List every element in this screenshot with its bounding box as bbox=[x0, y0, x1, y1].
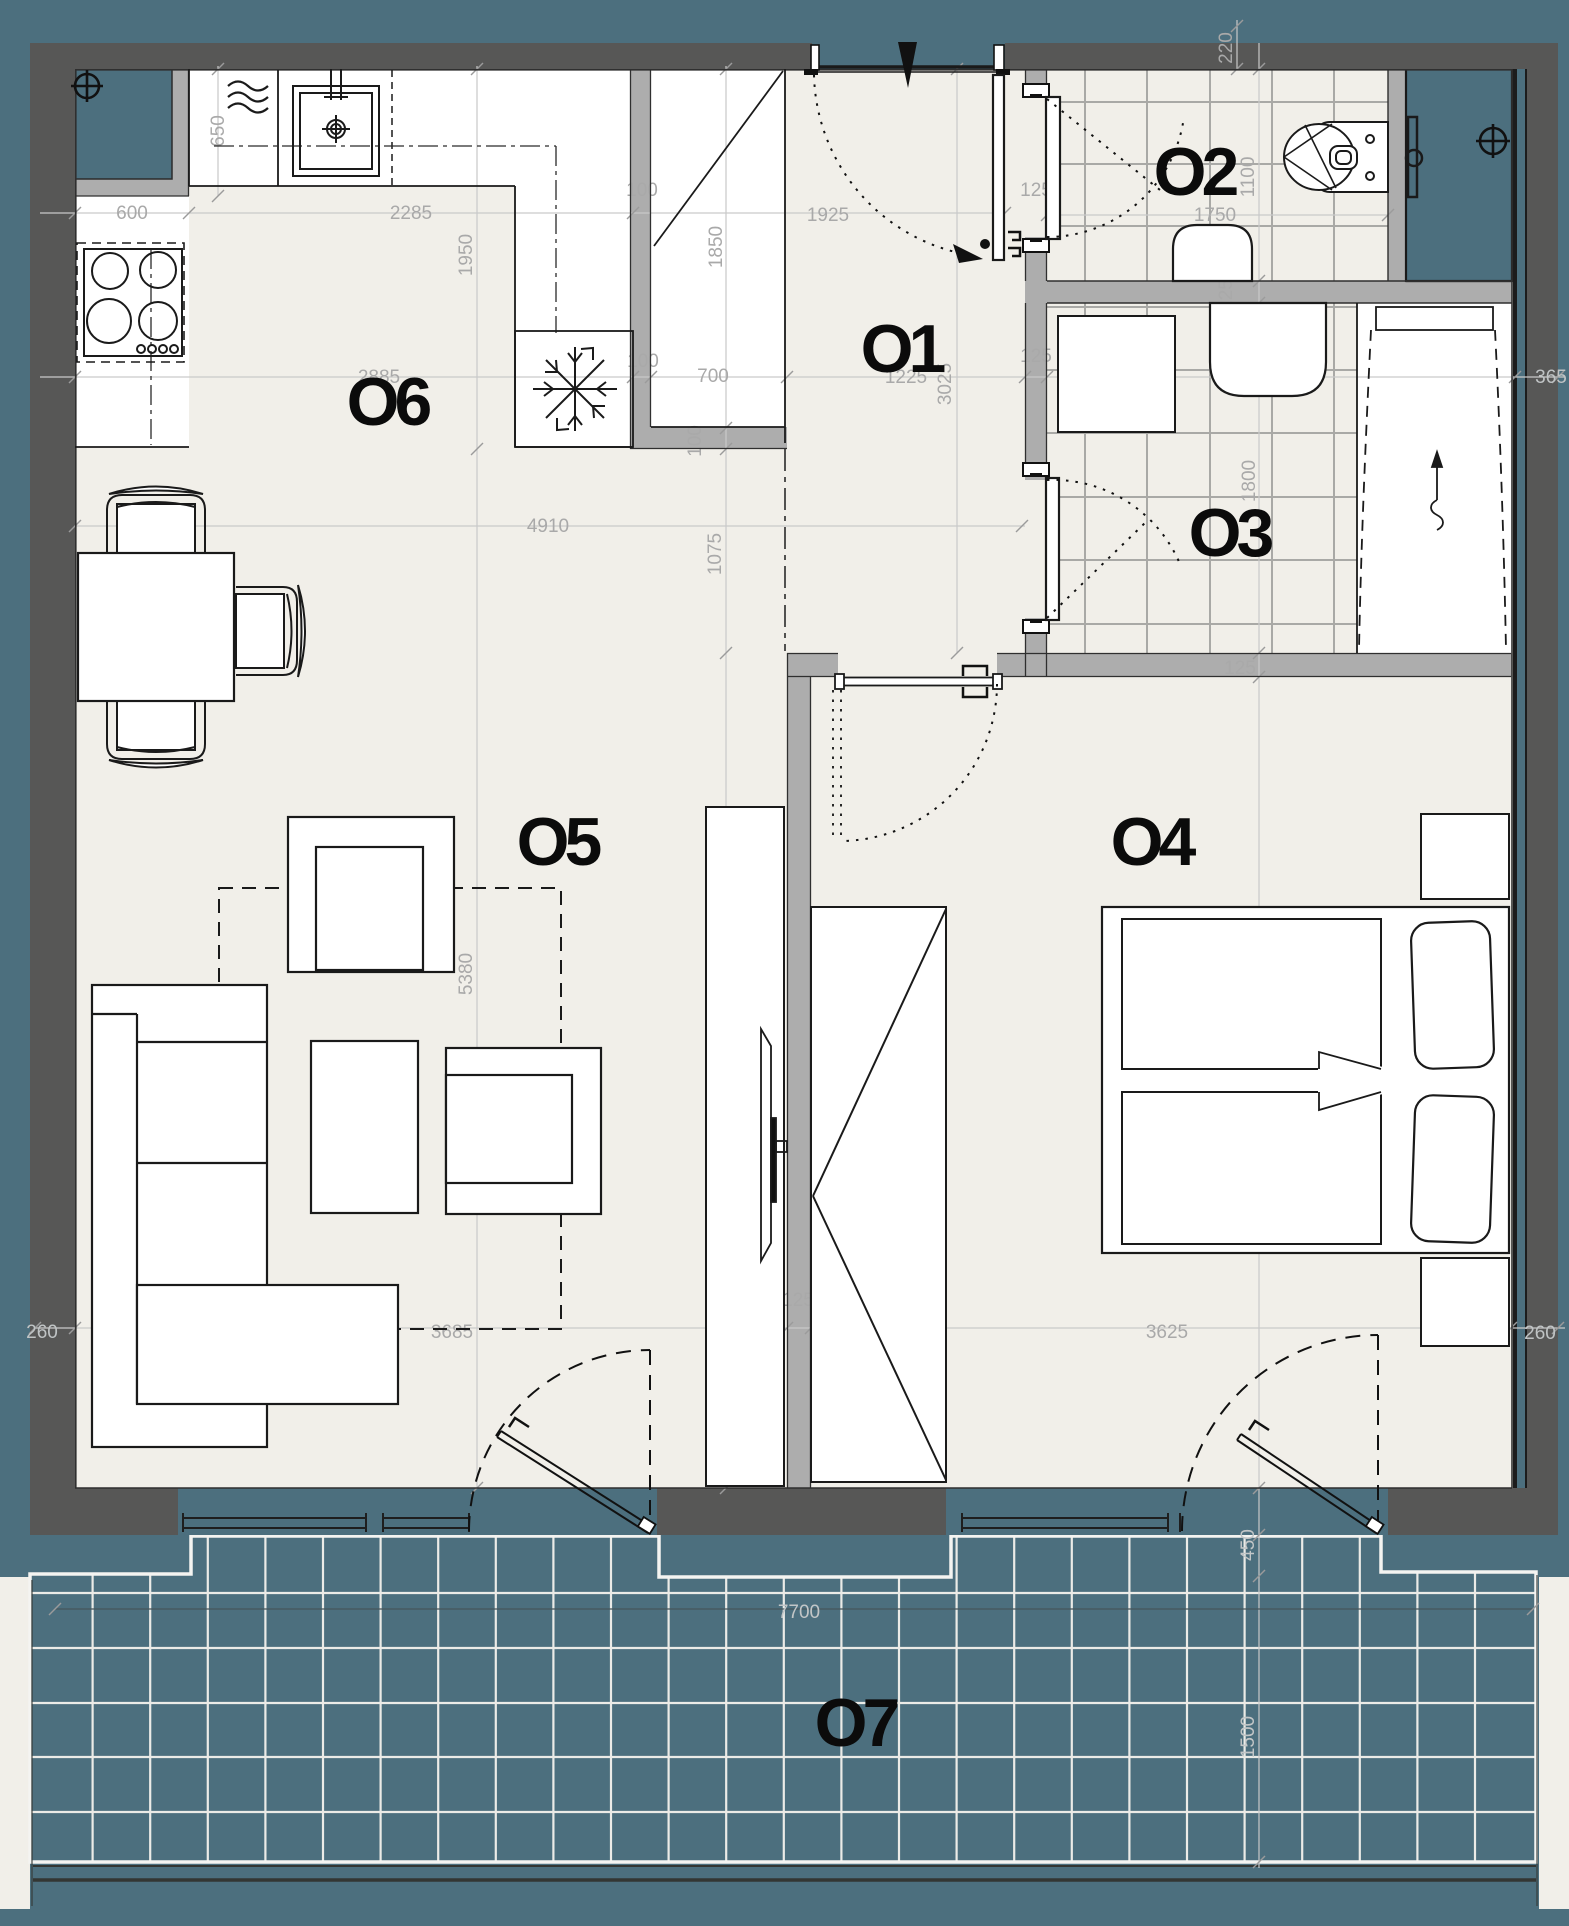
svg-text:1950: 1950 bbox=[456, 234, 477, 276]
svg-text:220: 220 bbox=[1216, 32, 1237, 64]
svg-text:3685: 3685 bbox=[431, 1322, 473, 1343]
svg-text:5380: 5380 bbox=[456, 953, 477, 995]
svg-text:3625: 3625 bbox=[1146, 1322, 1188, 1343]
svg-text:4910: 4910 bbox=[527, 516, 569, 537]
svg-text:260: 260 bbox=[1524, 1323, 1556, 1344]
svg-text:2285: 2285 bbox=[390, 203, 432, 224]
svg-text:1850: 1850 bbox=[706, 226, 727, 268]
svg-text:700: 700 bbox=[697, 366, 729, 387]
svg-text:O2: O2 bbox=[1154, 134, 1238, 210]
svg-text:O5: O5 bbox=[517, 804, 601, 880]
svg-text:450: 450 bbox=[1238, 1529, 1259, 1561]
svg-text:260: 260 bbox=[26, 1322, 58, 1343]
svg-text:365: 365 bbox=[1535, 367, 1567, 388]
svg-text:O7: O7 bbox=[815, 1685, 898, 1761]
svg-text:O6: O6 bbox=[347, 364, 431, 440]
svg-text:O1: O1 bbox=[861, 311, 945, 387]
svg-text:O4: O4 bbox=[1111, 804, 1197, 880]
svg-text:1100: 1100 bbox=[1238, 157, 1259, 198]
svg-text:100: 100 bbox=[685, 425, 706, 457]
svg-text:650: 650 bbox=[208, 115, 229, 147]
svg-text:1075: 1075 bbox=[705, 533, 726, 575]
svg-text:7700: 7700 bbox=[778, 1602, 820, 1623]
svg-text:100: 100 bbox=[627, 351, 659, 372]
svg-text:O3: O3 bbox=[1189, 495, 1273, 571]
svg-text:1500: 1500 bbox=[1238, 1716, 1259, 1758]
svg-text:600: 600 bbox=[116, 203, 148, 224]
svg-text:1925: 1925 bbox=[807, 205, 849, 226]
